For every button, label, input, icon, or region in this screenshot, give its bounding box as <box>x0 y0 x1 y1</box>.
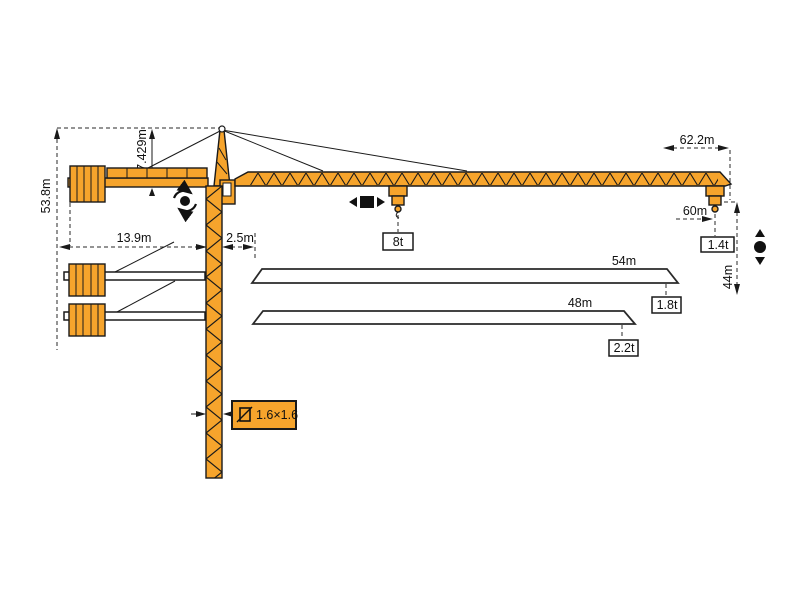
jib-outline-54m <box>252 269 678 283</box>
label-tower-height: 53.8m <box>39 179 53 214</box>
ballast-stack <box>69 304 105 336</box>
label-capacity-mid: 8t <box>393 235 404 249</box>
label-top-section-height: 7.429m <box>135 129 149 171</box>
hoist-up-down-icon <box>754 229 766 265</box>
pendant-rope-right-1 <box>222 130 323 171</box>
leader-line <box>115 242 174 272</box>
label-jib54-tip-load: 1.8t <box>657 298 678 312</box>
hook-icon <box>712 206 718 212</box>
ballast-option-1 <box>64 242 205 296</box>
label-jib48-tip-load: 2.2t <box>614 341 635 355</box>
leader-line <box>117 281 175 312</box>
label-jib54-length: 54m <box>612 254 636 268</box>
hook-icon <box>395 206 401 212</box>
label-jib-root-offset: 2.5m <box>226 231 254 245</box>
ballast-stack <box>69 264 105 296</box>
trolley-travel-icon <box>349 196 385 208</box>
pendant-rope-left <box>148 130 222 168</box>
jib-variant-54m: 54m 1.8t <box>252 254 681 313</box>
cab-window <box>223 183 231 196</box>
label-hook-height: 44m <box>721 265 735 289</box>
counterweight-stack <box>70 166 105 202</box>
tower-crane-dimension-diagram: 53.8m 7.429m 13.9m 2.5m 62.2m 60m 44m <box>0 0 800 600</box>
apex-pin <box>219 126 225 132</box>
label-counterjib-length: 13.9m <box>117 231 152 245</box>
pendant-rope-right-2 <box>222 130 467 171</box>
cat-head <box>214 130 230 186</box>
label-mast-section: 1.6×1.6 <box>256 408 298 422</box>
label-tip-radius: 60m <box>683 204 707 218</box>
diagram-canvas: 53.8m 7.429m 13.9m 2.5m 62.2m 60m 44m <box>0 0 800 600</box>
counterjib-panels <box>107 168 207 178</box>
trolley-frame <box>389 186 407 196</box>
main-jib <box>235 172 731 186</box>
label-jib48-length: 48m <box>568 296 592 310</box>
trolley-mid: 8t <box>383 186 413 250</box>
slew-rotation-icon <box>174 191 196 211</box>
jib-variant-48m: 48m 2.2t <box>253 296 638 356</box>
label-capacity-tip: 1.4t <box>708 238 729 252</box>
arrow-up-icon <box>54 128 60 139</box>
hook-block <box>392 196 404 205</box>
label-max-jib-span: 62.2m <box>680 133 715 147</box>
jib-outline-48m <box>253 311 635 324</box>
